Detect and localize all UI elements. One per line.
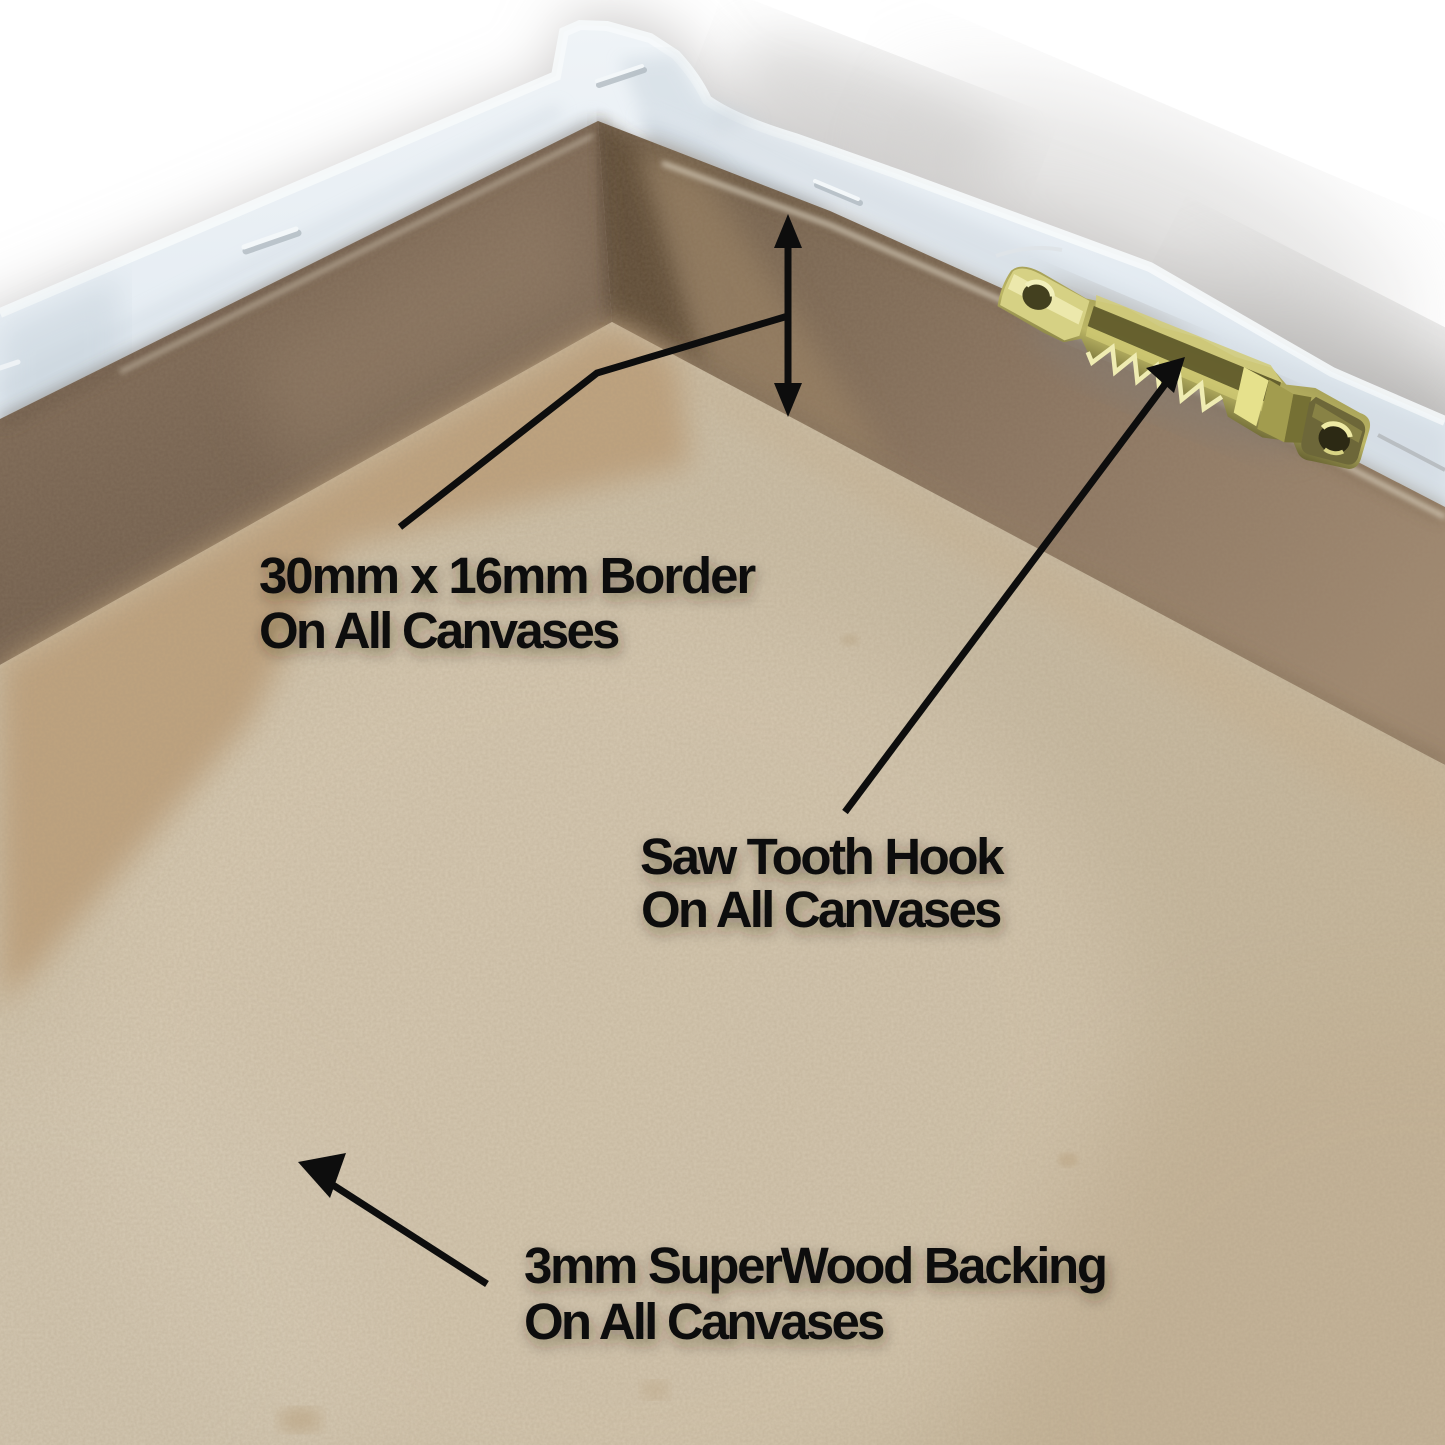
- svg-text:On All Canvases: On All Canvases: [641, 881, 1001, 938]
- svg-text:30mm x 16mm Border: 30mm x 16mm Border: [259, 547, 756, 604]
- svg-text:Saw Tooth Hook: Saw Tooth Hook: [640, 828, 1005, 885]
- svg-text:On All Canvases: On All Canvases: [259, 602, 619, 659]
- svg-text:On All Canvases: On All Canvases: [524, 1293, 884, 1350]
- svg-text:3mm SuperWood Backing: 3mm SuperWood Backing: [524, 1237, 1106, 1294]
